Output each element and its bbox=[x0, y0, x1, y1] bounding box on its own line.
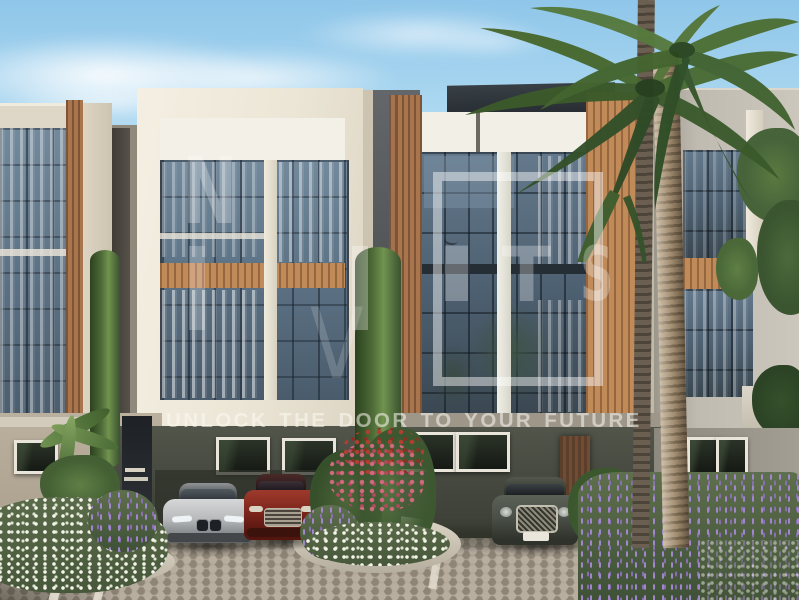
watermark-letter-v: V bbox=[310, 296, 364, 394]
car-kidney-grille bbox=[196, 519, 209, 532]
unit-a-wood-band bbox=[160, 263, 345, 288]
watermark-letter-s: S bbox=[580, 237, 613, 312]
dark-doorway bbox=[122, 416, 152, 502]
window bbox=[716, 437, 748, 475]
car-kidney-grille bbox=[209, 519, 222, 532]
bed-greenery bbox=[700, 540, 799, 600]
logo-stroke-fragment bbox=[189, 246, 205, 330]
car-headlight bbox=[500, 507, 512, 517]
car-license-plate bbox=[523, 532, 549, 541]
doorway-step bbox=[125, 468, 145, 472]
unit-a-curtains-lower-left bbox=[162, 290, 262, 398]
doorway-step bbox=[124, 477, 148, 481]
watermark-letter-i: I bbox=[434, 237, 479, 313]
watermark-letter-t: T bbox=[502, 237, 551, 313]
townhouse-exterior-render: N V I T S UNLOCK THE DOOR TO YOUR FUTURE bbox=[0, 0, 799, 600]
car-suv-bentley bbox=[492, 477, 578, 547]
bed-greenery bbox=[305, 522, 450, 566]
left-building-curtains bbox=[0, 128, 68, 430]
car-grille-chrome bbox=[264, 508, 302, 527]
unit-a-curtains-upper-right bbox=[279, 162, 343, 262]
car-headlight bbox=[249, 506, 263, 512]
watermark-tagline: UNLOCK THE DOOR TO YOUR FUTURE bbox=[166, 409, 646, 433]
left-building-wood-slats bbox=[66, 100, 83, 430]
lavender-patch bbox=[88, 490, 158, 552]
left-building-sill-line bbox=[0, 249, 68, 256]
car-bumper bbox=[167, 533, 251, 542]
window bbox=[456, 432, 510, 472]
pink-flowers bbox=[328, 442, 424, 512]
car-mesh-grille bbox=[516, 505, 558, 533]
watermark-letter-n: N bbox=[182, 146, 237, 238]
unit-a-white-mullion bbox=[264, 160, 277, 400]
